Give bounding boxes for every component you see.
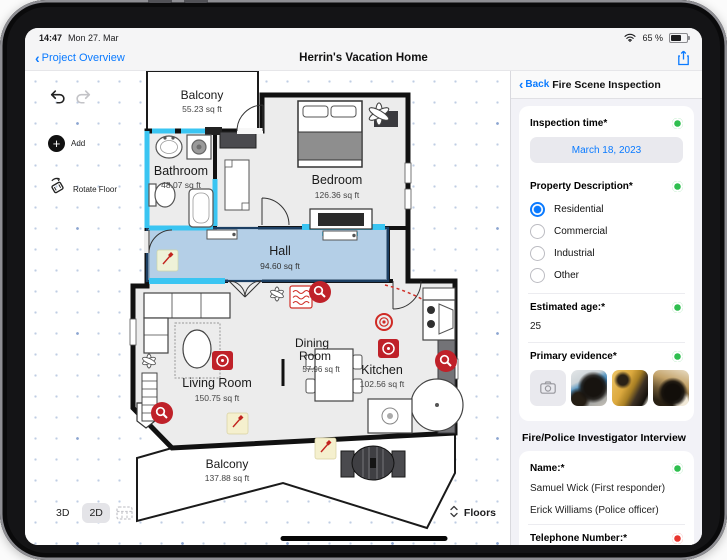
radio-commercial[interactable]: Commercial bbox=[530, 220, 683, 242]
note-marker[interactable] bbox=[157, 250, 178, 271]
floors-chevrons-icon bbox=[449, 505, 459, 521]
plus-icon: + bbox=[48, 135, 65, 152]
evidence-marker-magnifier[interactable] bbox=[151, 402, 173, 424]
estimated-age-value[interactable]: 25 bbox=[530, 319, 683, 342]
room-label-living-room: Living Room bbox=[182, 376, 251, 390]
battery-icon bbox=[669, 33, 688, 43]
floors-label: Floors bbox=[464, 507, 496, 519]
evidence-marker-speaker[interactable] bbox=[378, 339, 399, 358]
add-button[interactable]: + Add bbox=[48, 135, 85, 152]
room-label-kitchen: Kitchen bbox=[361, 363, 403, 377]
share-button[interactable] bbox=[677, 50, 690, 71]
svg-text:Room: Room bbox=[299, 349, 331, 363]
inspection-date-button[interactable]: March 18, 2023 bbox=[530, 137, 683, 163]
interview-card: Name:* Samuel Wick (First responder) Eri… bbox=[519, 451, 694, 546]
floorplan-drawing: Balcony 55.23 sq ft Bathroom 48.07 sq ft… bbox=[25, 71, 510, 545]
rotate-floor-button[interactable]: Rotate Floor bbox=[48, 177, 117, 201]
undo-button[interactable] bbox=[49, 87, 67, 105]
svg-text:126.36 sq ft: 126.36 sq ft bbox=[315, 190, 360, 200]
floorplan-canvas[interactable]: Balcony 55.23 sq ft Bathroom 48.07 sq ft… bbox=[25, 71, 510, 545]
field-invalid-icon bbox=[672, 533, 683, 544]
wall-cap bbox=[205, 127, 222, 135]
room-label-balcony-bottom: Balcony bbox=[206, 457, 249, 471]
radio-icon bbox=[530, 246, 545, 261]
grid-view-button[interactable] bbox=[116, 504, 133, 523]
field-valid-icon bbox=[672, 351, 683, 362]
back-to-project-overview[interactable]: ‹ Project Overview bbox=[35, 52, 125, 64]
kitchen-cart[interactable] bbox=[368, 399, 412, 433]
evidence-photo-3[interactable] bbox=[653, 370, 689, 406]
room-label-balcony-top: Balcony bbox=[181, 88, 224, 102]
name-value[interactable]: Samuel Wick (First responder) bbox=[530, 480, 683, 502]
radio-selected-icon bbox=[530, 202, 545, 217]
evidence-marker-magnifier[interactable] bbox=[435, 350, 457, 372]
page-title: Herrin's Vacation Home bbox=[299, 52, 428, 64]
evidence-photo-2[interactable] bbox=[612, 370, 648, 406]
property-description-label: Property Description* bbox=[530, 181, 633, 192]
home-indicator[interactable] bbox=[280, 536, 447, 541]
interview-section-header: Fire/Police Investigator Interview bbox=[519, 421, 694, 451]
panel-title: Fire Scene Inspection bbox=[552, 79, 661, 91]
rotate-icon bbox=[48, 177, 67, 201]
field-valid-icon bbox=[672, 118, 683, 129]
room-label-dining-room: Dining bbox=[295, 336, 329, 350]
estimated-age-label: Estimated age:* bbox=[530, 302, 605, 313]
svg-text:94.60 sq ft: 94.60 sq ft bbox=[260, 261, 300, 271]
svg-text:137.88 sq ft: 137.88 sq ft bbox=[205, 473, 250, 483]
radio-industrial[interactable]: Industrial bbox=[530, 242, 683, 264]
view-2d-button[interactable]: 2D bbox=[82, 503, 109, 523]
svg-text:48.07 sq ft: 48.07 sq ft bbox=[161, 180, 201, 190]
name-label: Name:* bbox=[530, 463, 564, 474]
room-label-hall: Hall bbox=[269, 244, 291, 258]
primary-evidence-label: Primary evidence* bbox=[530, 351, 617, 362]
note-marker[interactable] bbox=[227, 413, 248, 434]
battery-percent: 65 % bbox=[642, 33, 663, 43]
volume-button bbox=[148, 0, 172, 3]
add-label: Add bbox=[71, 139, 85, 148]
panel-back-label: Back bbox=[525, 79, 549, 90]
evidence-photos bbox=[530, 368, 683, 417]
svg-text:150.75 sq ft: 150.75 sq ft bbox=[195, 393, 240, 403]
evidence-marker-speaker[interactable] bbox=[212, 351, 233, 370]
evidence-photo-1[interactable] bbox=[571, 370, 607, 406]
inspection-card: Inspection time* March 18, 2023 Property… bbox=[519, 106, 694, 421]
panel-back-button[interactable]: ‹ Back bbox=[519, 79, 549, 90]
field-valid-icon bbox=[672, 463, 683, 474]
chevron-left-icon: ‹ bbox=[35, 53, 40, 63]
inspection-panel: ‹ Back Fire Scene Inspection Inspection … bbox=[510, 71, 702, 545]
radio-icon bbox=[530, 224, 545, 239]
svg-text:55.23 sq ft: 55.23 sq ft bbox=[182, 104, 222, 114]
redo-button[interactable] bbox=[74, 87, 92, 105]
room-label-bedroom: Bedroom bbox=[312, 173, 363, 187]
svg-text:57.96 sq ft: 57.96 sq ft bbox=[302, 365, 340, 374]
chevron-left-icon: ‹ bbox=[519, 80, 523, 89]
kitchen-table-round[interactable] bbox=[411, 379, 463, 431]
view-mode-switch: 3D 2D bbox=[49, 503, 133, 523]
evidence-marker-magnifier[interactable] bbox=[309, 281, 331, 303]
rotate-floor-label: Rotate Floor bbox=[73, 185, 117, 194]
view-3d-button[interactable]: 3D bbox=[49, 503, 76, 523]
evidence-marker-radiator[interactable] bbox=[290, 286, 312, 308]
wifi-icon bbox=[624, 33, 636, 44]
bed[interactable] bbox=[298, 101, 362, 167]
telephone-label: Telephone Number:* bbox=[530, 533, 627, 544]
volume-button bbox=[184, 0, 208, 3]
inspection-form[interactable]: Inspection time* March 18, 2023 Property… bbox=[511, 99, 702, 545]
date: Mon 27. Mar bbox=[68, 33, 119, 43]
clock: 14:47 bbox=[39, 33, 62, 43]
floors-button[interactable]: Floors bbox=[449, 505, 496, 521]
dresser[interactable] bbox=[310, 209, 372, 229]
screenshot: 14:47 Mon 27. Mar 65 % ‹ Project Overvie… bbox=[0, 0, 727, 560]
back-label: Project Overview bbox=[42, 52, 125, 64]
name-value[interactable]: Erick Williams (Police officer) bbox=[530, 502, 683, 524]
ipad-screen: 14:47 Mon 27. Mar 65 % ‹ Project Overvie… bbox=[25, 28, 702, 545]
add-photo-button[interactable] bbox=[530, 370, 566, 406]
svg-text:102.56 sq ft: 102.56 sq ft bbox=[360, 379, 405, 389]
radio-residential[interactable]: Residential bbox=[530, 198, 683, 220]
radio-other[interactable]: Other bbox=[530, 264, 683, 293]
status-bar: 14:47 Mon 27. Mar 65 % bbox=[25, 28, 702, 46]
inspection-time-label: Inspection time* bbox=[530, 118, 607, 129]
note-marker[interactable] bbox=[315, 438, 336, 459]
room-label-bathroom: Bathroom bbox=[154, 164, 208, 178]
radio-icon bbox=[530, 268, 545, 283]
field-valid-icon bbox=[672, 302, 683, 313]
outdoor-table[interactable] bbox=[341, 446, 405, 480]
nav-bar: ‹ Project Overview Herrin's Vacation Hom… bbox=[25, 46, 702, 71]
panel-header: ‹ Back Fire Scene Inspection bbox=[511, 71, 702, 99]
camera-icon bbox=[540, 381, 556, 394]
field-valid-icon bbox=[672, 181, 683, 192]
